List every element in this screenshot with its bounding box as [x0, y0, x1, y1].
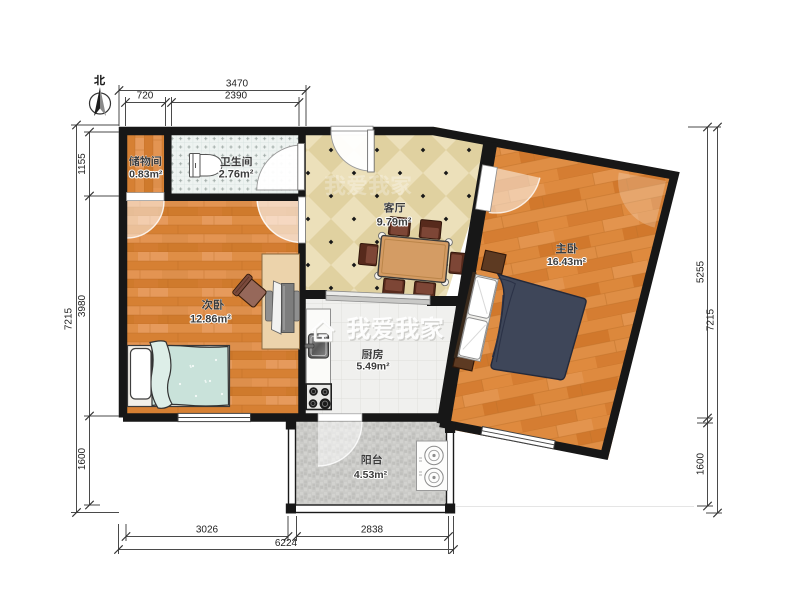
svg-text:3470: 3470: [226, 79, 249, 90]
svg-text:2.76m²: 2.76m²: [219, 169, 254, 181]
svg-text:1600: 1600: [696, 452, 707, 475]
svg-text:6224: 6224: [275, 538, 298, 549]
svg-text:5255: 5255: [696, 260, 707, 283]
svg-text:16.43m²: 16.43m²: [547, 256, 587, 268]
svg-text:7215: 7215: [64, 307, 75, 330]
svg-text:2390: 2390: [225, 91, 248, 102]
svg-text:4.53m²: 4.53m²: [354, 469, 388, 481]
svg-text:3980: 3980: [77, 294, 88, 317]
svg-text:12.86m²: 12.86m²: [190, 314, 231, 326]
svg-text:7215: 7215: [706, 308, 717, 331]
svg-text:720: 720: [137, 91, 154, 102]
svg-text:0.83m²: 0.83m²: [129, 168, 163, 180]
svg-text:5.49m²: 5.49m²: [356, 360, 390, 372]
svg-text:1155: 1155: [77, 153, 88, 175]
svg-text:9.79m²: 9.79m²: [377, 217, 412, 229]
svg-text:2838: 2838: [361, 525, 384, 536]
svg-text:3026: 3026: [196, 525, 219, 536]
svg-text:1600: 1600: [77, 447, 88, 470]
